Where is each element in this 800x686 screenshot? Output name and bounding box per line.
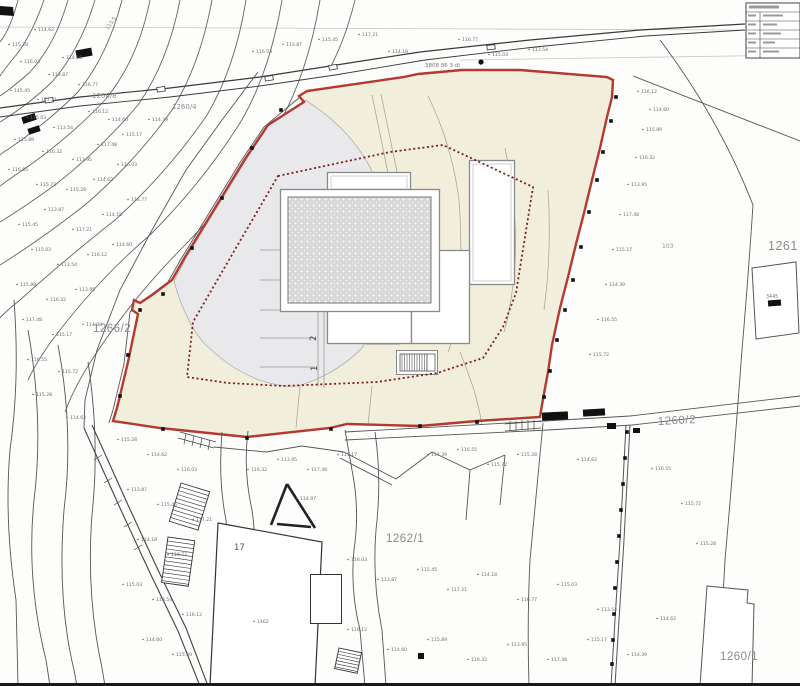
svg-text:114.39: 114.39 <box>631 652 647 658</box>
survey-point <box>478 59 483 64</box>
label-house-17: 17 <box>234 543 245 553</box>
svg-text:113.54: 113.54 <box>601 607 617 613</box>
svg-text:115.17: 115.17 <box>126 132 142 138</box>
svg-text:114.39: 114.39 <box>152 117 168 123</box>
label-parcel-1261: 1261 <box>768 239 798 253</box>
svg-text:116.55: 116.55 <box>461 447 477 453</box>
svg-text:116.77: 116.77 <box>131 197 147 203</box>
label-house-3445: 3445 <box>766 294 778 300</box>
label-parcel-1260-2: 1260/2 <box>658 414 697 428</box>
svg-text:116.32: 116.32 <box>471 657 487 663</box>
svg-text:113.95: 113.95 <box>631 182 647 188</box>
svg-text:114.18: 114.18 <box>141 537 157 543</box>
svg-text:113.87: 113.87 <box>52 72 68 78</box>
svg-text:115.03: 115.03 <box>35 247 51 253</box>
label-spot-2: 2 <box>309 336 319 341</box>
svg-text:115.17: 115.17 <box>591 637 607 643</box>
svg-text:114.62: 114.62 <box>581 457 597 463</box>
svg-text:115.28: 115.28 <box>700 541 716 547</box>
svg-text:115.89: 115.89 <box>176 652 192 658</box>
svg-text:114.62: 114.62 <box>38 27 54 33</box>
svg-text:114.18: 114.18 <box>66 55 82 61</box>
svg-text:115.17: 115.17 <box>56 332 72 338</box>
svg-text:115.45: 115.45 <box>14 88 30 94</box>
svg-text:115.72: 115.72 <box>40 182 56 188</box>
svg-text:113.87: 113.87 <box>48 207 64 213</box>
svg-text:115.45: 115.45 <box>322 37 338 43</box>
label-parcel-1260-4: 1260/4 <box>172 103 197 111</box>
svg-text:114.62: 114.62 <box>151 452 167 458</box>
svg-text:115.89: 115.89 <box>20 282 36 288</box>
svg-text:113.54: 113.54 <box>532 47 548 53</box>
svg-text:117.21: 117.21 <box>196 517 212 523</box>
svg-text:113.95: 113.95 <box>76 157 92 163</box>
label-parcel-103: 103 <box>662 243 674 250</box>
svg-text:115.45: 115.45 <box>22 222 38 228</box>
svg-text:113.87: 113.87 <box>131 487 147 493</box>
svg-text:116.55: 116.55 <box>601 317 617 323</box>
svg-text:115.03: 115.03 <box>126 582 142 588</box>
svg-text:117.21: 117.21 <box>362 32 378 38</box>
main-building-hatched <box>288 197 431 303</box>
svg-text:113.95: 113.95 <box>281 457 297 463</box>
svg-text:115.28: 115.28 <box>36 392 52 398</box>
svg-text:1462: 1462 <box>257 619 269 625</box>
svg-text:113.87: 113.87 <box>286 42 302 48</box>
cadastral-map-viewport: 115.28114.62116.03113.87115.45117.21114.… <box>0 0 800 686</box>
svg-text:116.03: 116.03 <box>181 467 197 473</box>
svg-text:116.77: 116.77 <box>82 82 98 88</box>
svg-text:114.18: 114.18 <box>106 212 122 218</box>
svg-text:116.03: 116.03 <box>351 557 367 563</box>
svg-text:114.39: 114.39 <box>609 282 625 288</box>
svg-text:116.12: 116.12 <box>186 612 202 618</box>
svg-text:117.21: 117.21 <box>41 97 57 103</box>
svg-text:115.72: 115.72 <box>593 352 609 358</box>
svg-text:115.89: 115.89 <box>431 637 447 643</box>
svg-text:116.12: 116.12 <box>91 252 107 258</box>
svg-text:114.62: 114.62 <box>70 415 86 421</box>
corner-mark <box>0 6 14 16</box>
svg-text:117.48: 117.48 <box>623 212 639 218</box>
label-road-note: 3808 86 3 dl <box>425 63 460 69</box>
svg-text:115.28: 115.28 <box>521 452 537 458</box>
svg-text:113.54: 113.54 <box>156 597 172 603</box>
svg-text:113.87: 113.87 <box>381 577 397 583</box>
svg-text:116.77: 116.77 <box>171 552 187 558</box>
svg-text:117.48: 117.48 <box>26 317 42 323</box>
svg-text:115.72: 115.72 <box>685 501 701 507</box>
svg-text:116.12: 116.12 <box>92 109 108 115</box>
svg-text:116.03: 116.03 <box>121 162 137 168</box>
svg-text:114.60: 114.60 <box>146 637 162 643</box>
svg-text:116.55: 116.55 <box>12 167 28 173</box>
svg-text:117.21: 117.21 <box>76 227 92 233</box>
svg-text:114.18: 114.18 <box>481 572 497 578</box>
title-block <box>746 3 800 58</box>
svg-text:115.45: 115.45 <box>161 502 177 508</box>
label-parcel-1266-8: 1266/8 <box>92 92 117 100</box>
svg-text:114.60: 114.60 <box>116 242 132 248</box>
svg-text:114.39: 114.39 <box>431 452 447 458</box>
svg-text:114.18: 114.18 <box>392 49 408 55</box>
svg-text:116.77: 116.77 <box>521 597 537 603</box>
svg-text:116.32: 116.32 <box>46 149 62 155</box>
svg-text:115.17: 115.17 <box>616 247 632 253</box>
svg-text:115.72: 115.72 <box>491 462 507 468</box>
svg-text:117.21: 117.21 <box>451 587 467 593</box>
svg-text:114.60: 114.60 <box>391 647 407 653</box>
svg-text:115.45: 115.45 <box>421 567 437 573</box>
svg-text:115.28: 115.28 <box>70 187 86 193</box>
label-parcel-1262-1: 1262/1 <box>386 533 424 545</box>
svg-text:113.95: 113.95 <box>79 287 95 293</box>
svg-text:113.95: 113.95 <box>511 642 527 648</box>
site-plan-drawing: 115.28114.62116.03113.87115.45117.21114.… <box>0 0 800 686</box>
svg-text:115.28: 115.28 <box>12 42 28 48</box>
svg-text:115.28: 115.28 <box>121 437 137 443</box>
svg-text:116.03: 116.03 <box>256 49 272 55</box>
svg-text:113.54: 113.54 <box>61 262 77 268</box>
svg-text:117.48: 117.48 <box>551 657 567 663</box>
svg-text:114.97: 114.97 <box>300 496 316 502</box>
svg-text:114.62: 114.62 <box>660 616 676 622</box>
svg-text:117.48: 117.48 <box>101 142 117 148</box>
svg-text:116.32: 116.32 <box>50 297 66 303</box>
svg-text:116.12: 116.12 <box>351 627 367 633</box>
svg-text:115.72: 115.72 <box>62 369 78 375</box>
svg-text:114.62: 114.62 <box>97 177 113 183</box>
svg-text:116.03: 116.03 <box>24 59 40 65</box>
svg-text:116.32: 116.32 <box>639 155 655 161</box>
svg-text:115.03: 115.03 <box>561 582 577 588</box>
svg-text:115.17: 115.17 <box>341 452 357 458</box>
svg-text:116.77: 116.77 <box>462 37 478 43</box>
label-parcel-1266-2: 1266/2 <box>93 323 131 335</box>
label-spot-1: 1 <box>310 366 320 371</box>
svg-text:114.60: 114.60 <box>112 117 128 123</box>
svg-text:117.48: 117.48 <box>311 467 327 473</box>
svg-text:114.60: 114.60 <box>653 107 669 113</box>
entrance-stair <box>397 351 438 375</box>
svg-text:116.55: 116.55 <box>655 466 671 472</box>
svg-text:115.89: 115.89 <box>18 137 34 143</box>
svg-text:116.12: 116.12 <box>641 89 657 95</box>
svg-text:113.54: 113.54 <box>57 125 73 131</box>
svg-text:116.55: 116.55 <box>31 357 47 363</box>
svg-text:115.03: 115.03 <box>30 115 46 121</box>
svg-text:115.89: 115.89 <box>646 127 662 133</box>
label-parcel-1260-1: 1260/1 <box>720 651 758 663</box>
svg-text:115.03: 115.03 <box>492 52 508 58</box>
svg-text:116.32: 116.32 <box>251 467 267 473</box>
